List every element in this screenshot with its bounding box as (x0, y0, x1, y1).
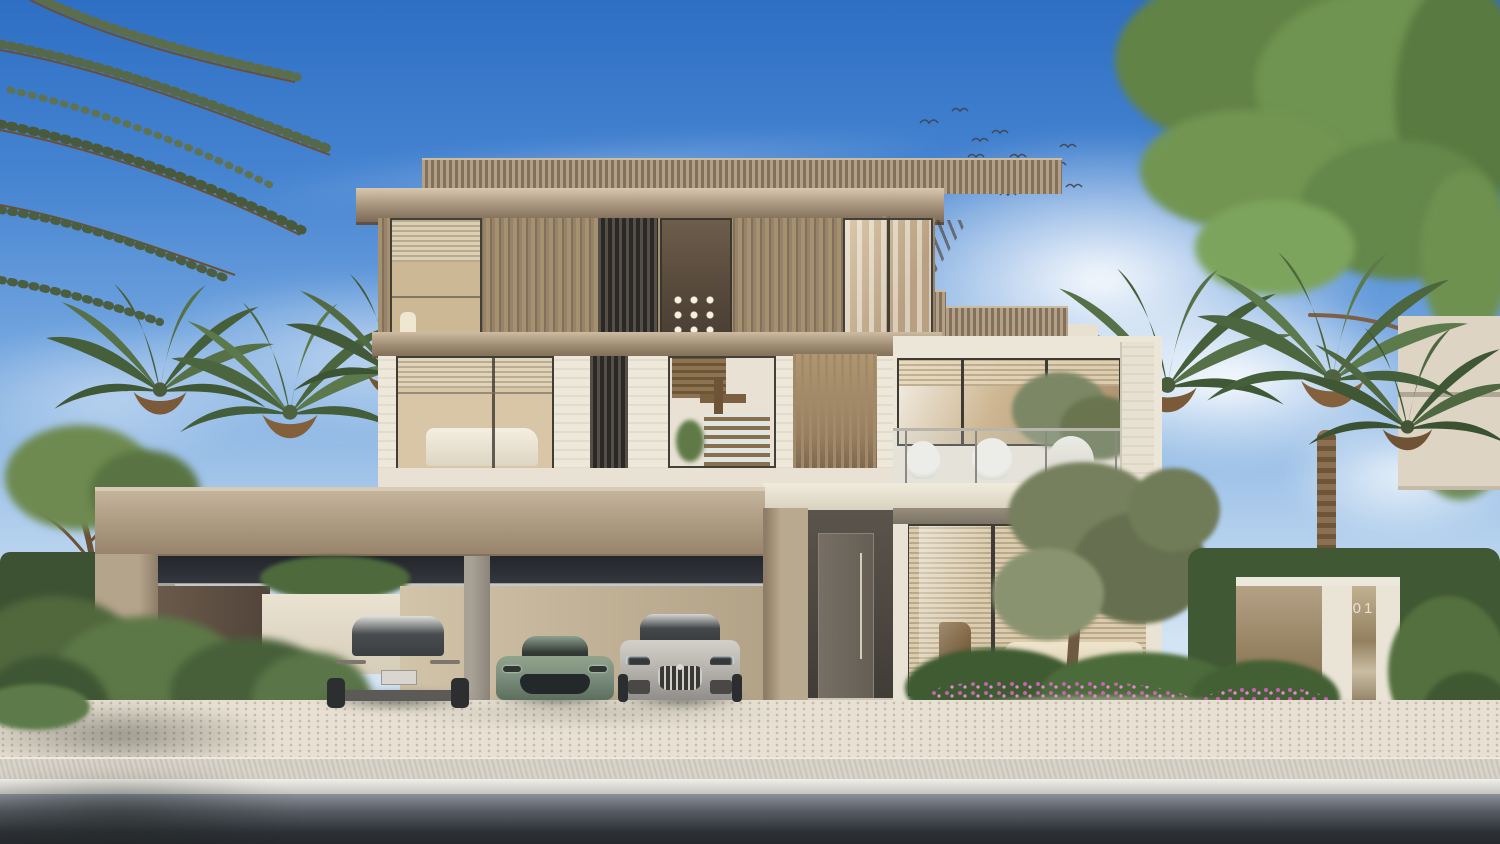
stair-plant (676, 420, 704, 462)
car-headlight (626, 656, 650, 665)
car-wheel (451, 678, 469, 708)
car-taillight (430, 660, 460, 664)
juliet-railing (398, 392, 552, 394)
palm-tree (1295, 322, 1500, 480)
window-blinds (392, 220, 480, 262)
third-floor-stair-window (660, 218, 732, 340)
second-floor-bedroom-window (396, 356, 554, 470)
car-emblem (677, 664, 683, 670)
window-railing (392, 296, 480, 298)
road-shadow-left (0, 770, 300, 844)
car-bumper-intake (628, 680, 650, 694)
terrace-parapet-slats (946, 306, 1068, 339)
car-taillight (336, 660, 366, 664)
car-bumper-intake (710, 680, 732, 694)
car-green-sports (496, 636, 614, 702)
lounge-post-left (893, 524, 908, 702)
front-olive-canopy (1128, 468, 1220, 552)
railing-post (975, 431, 977, 489)
chandelier-lights (672, 292, 722, 334)
car-wheel (618, 674, 628, 702)
bed (426, 428, 538, 466)
front-olive-canopy (992, 548, 1104, 640)
carport-fascia (95, 487, 765, 557)
door-handle (860, 553, 862, 659)
third-floor-slat-screen (598, 218, 658, 340)
entrance-door (818, 533, 874, 699)
window-mullion (492, 358, 495, 468)
carport-awning (152, 556, 765, 584)
car-license-plate (381, 670, 417, 685)
car-diffuser (340, 690, 456, 701)
staircase-window (668, 356, 776, 468)
entrance-pier (763, 508, 808, 712)
car-wheel (327, 678, 345, 708)
window-mullion (887, 220, 890, 338)
car-headlight (710, 656, 734, 665)
second-floor-slat-screen (590, 356, 628, 468)
stair-beam (700, 394, 746, 403)
window-blinds (398, 358, 552, 388)
railing-post (905, 431, 907, 489)
car-headlight (503, 666, 521, 672)
car-silver-rear (326, 616, 470, 708)
car-grille (520, 674, 590, 694)
third-floor-curtain-window (843, 218, 933, 340)
car-silver-front (620, 614, 740, 706)
stair-treads (704, 414, 770, 466)
car-wheel (732, 674, 742, 702)
third-floor-bedroom-window (390, 218, 482, 340)
scene-villa-render: 01 (0, 0, 1500, 844)
car-headlight (589, 666, 607, 672)
